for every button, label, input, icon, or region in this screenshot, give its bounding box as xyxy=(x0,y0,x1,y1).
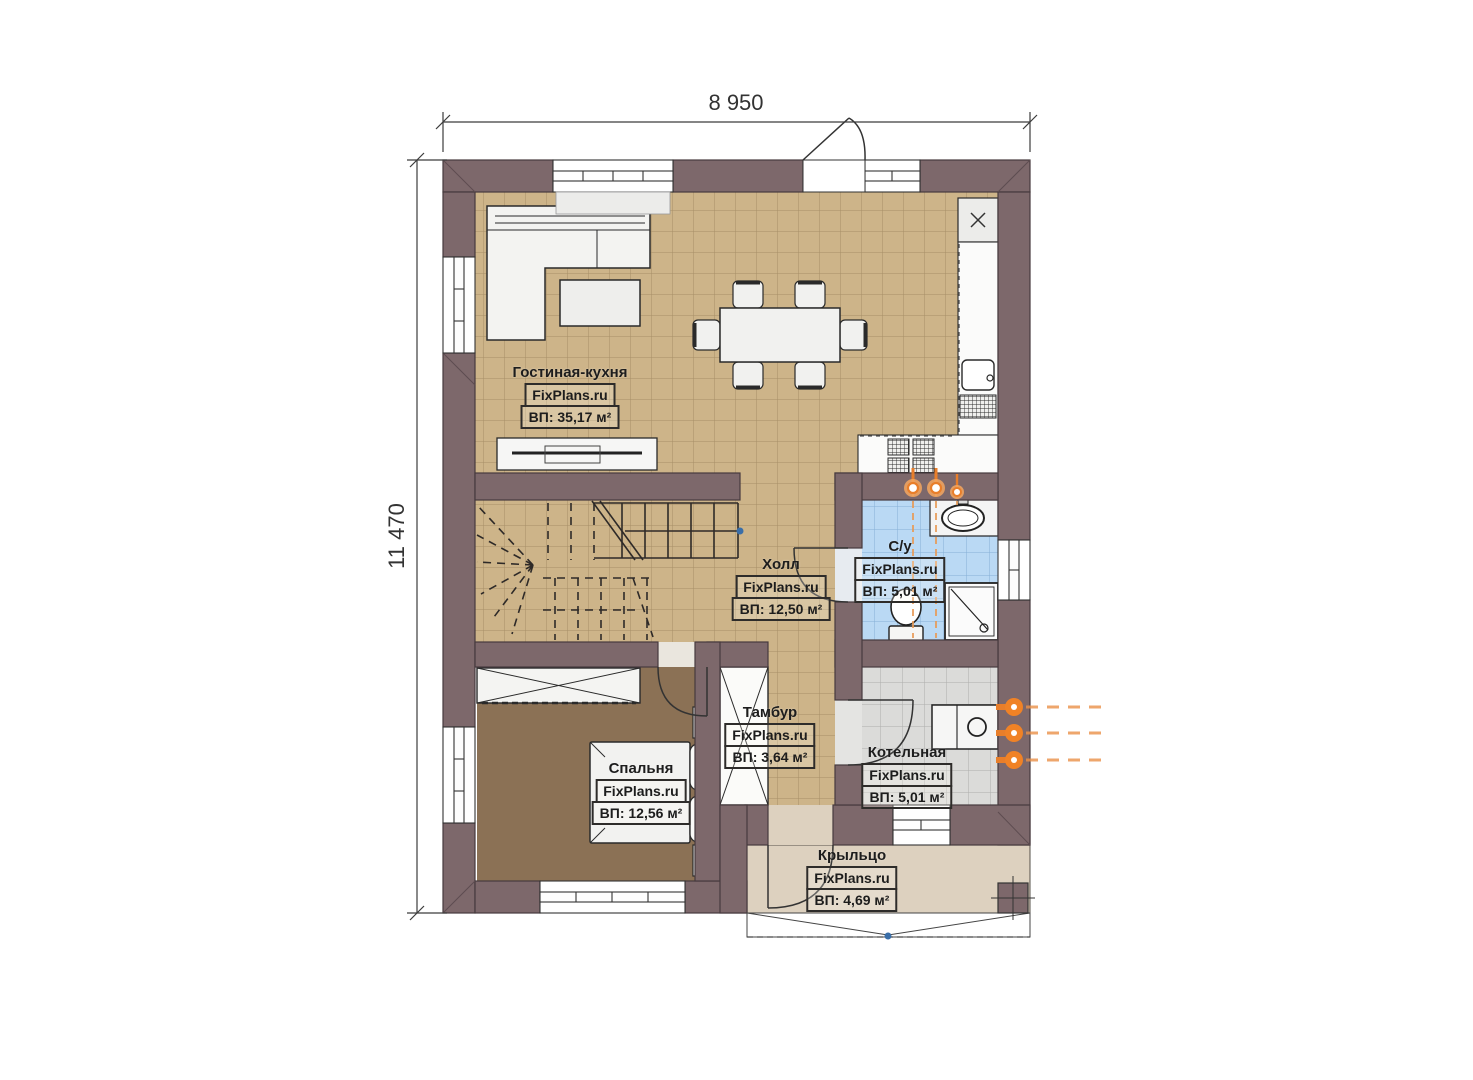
boiler-unit xyxy=(932,705,998,749)
room-label-bedroom: Спальня FixPlans.ru ВП: 12,56 м² xyxy=(592,760,691,825)
dimension-top: 8 950 xyxy=(436,90,1037,152)
window-entry-sidelight xyxy=(865,160,920,192)
entry-door xyxy=(803,118,865,192)
room-watermark: FixPlans.ru xyxy=(854,557,945,581)
chair xyxy=(795,281,825,308)
porch-steps xyxy=(747,913,1030,940)
window-sill xyxy=(556,192,670,214)
boiler-pipes xyxy=(996,698,1108,769)
window-bedroom-bottom xyxy=(540,881,685,913)
pipe-line xyxy=(996,724,1108,742)
room-name: Спальня xyxy=(609,760,674,777)
room-name: Холл xyxy=(762,556,800,573)
room-name: Крыльцо xyxy=(818,847,886,864)
window-boiler-bottom xyxy=(893,805,950,845)
dining-table xyxy=(720,308,840,362)
room-label-living: Гостиная-кухня FixPlans.ru ВП: 35,17 м² xyxy=(513,364,628,429)
room-label-hall: Холл FixPlans.ru ВП: 12,50 м² xyxy=(732,556,831,621)
window-bathroom-right xyxy=(998,540,1030,600)
room-area: ВП: 12,56 м² xyxy=(592,801,691,825)
shower xyxy=(945,583,998,640)
room-label-bathroom: С/у FixPlans.ru ВП: 5,01 м² xyxy=(854,538,945,603)
floor-plan-canvas: 8 950 11 470 xyxy=(0,0,1473,1080)
room-area: ВП: 12,50 м² xyxy=(732,597,831,621)
dimension-left: 11 470 xyxy=(384,153,447,920)
window-living-left xyxy=(443,257,475,353)
stair-start-marker xyxy=(737,528,744,535)
room-watermark: FixPlans.ru xyxy=(735,575,826,599)
room-watermark: FixPlans.ru xyxy=(724,723,815,747)
chair xyxy=(840,320,867,350)
room-label-porch: Крыльцо FixPlans.ru ВП: 4,69 м² xyxy=(806,847,897,912)
toilet-tank xyxy=(889,626,923,641)
room-watermark: FixPlans.ru xyxy=(806,866,897,890)
room-watermark: FixPlans.ru xyxy=(861,763,952,787)
room-area: ВП: 35,17 м² xyxy=(521,405,620,429)
coffee-table xyxy=(560,280,640,326)
window-bedroom-left xyxy=(443,727,475,823)
room-label-boiler: Котельная FixPlans.ru ВП: 5,01 м² xyxy=(861,744,952,809)
wardrobe xyxy=(477,668,640,703)
chair xyxy=(795,362,825,389)
room-watermark: FixPlans.ru xyxy=(524,383,615,407)
dimension-width-label: 8 950 xyxy=(708,90,763,115)
room-label-tambour: Тамбур FixPlans.ru ВП: 3,64 м² xyxy=(724,704,815,769)
room-name: Тамбур xyxy=(743,704,797,721)
pipe-line xyxy=(996,751,1108,769)
room-area: ВП: 5,01 м² xyxy=(855,579,946,603)
tv-stand xyxy=(497,438,657,470)
room-area: ВП: 5,01 м² xyxy=(862,785,953,809)
room-name: С/у xyxy=(888,538,911,555)
dimension-height-label: 11 470 xyxy=(384,503,409,569)
room-watermark: FixPlans.ru xyxy=(595,779,686,803)
pipe-line xyxy=(996,698,1108,716)
drying-rack xyxy=(960,395,996,418)
chair xyxy=(693,320,720,350)
window-living-top xyxy=(553,160,673,192)
room-name: Гостиная-кухня xyxy=(513,364,628,381)
room-name: Котельная xyxy=(868,744,947,761)
floor-plan-page: 8 950 11 470 Гостиная-кухня FixPlans.ru … xyxy=(0,0,1473,1080)
chair xyxy=(733,362,763,389)
room-area: ВП: 4,69 м² xyxy=(807,888,898,912)
room-area: ВП: 3,64 м² xyxy=(725,745,816,769)
chair xyxy=(733,281,763,308)
porch-column xyxy=(991,876,1035,920)
step-marker xyxy=(885,933,892,940)
faucet-icon xyxy=(987,375,993,381)
